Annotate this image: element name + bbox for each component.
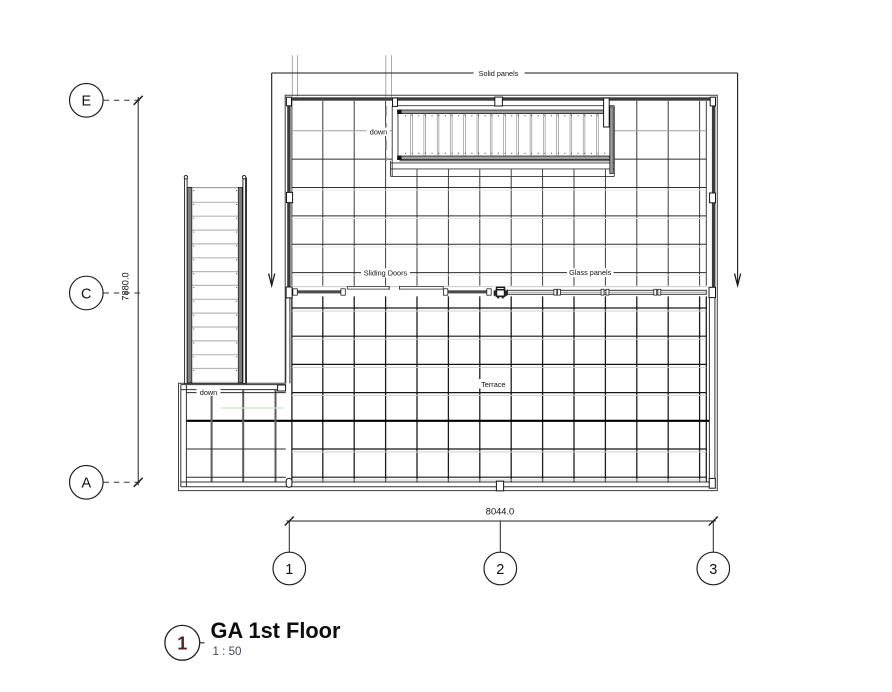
svg-text:2: 2 <box>496 562 504 578</box>
svg-text:1: 1 <box>177 633 187 653</box>
svg-text:E: E <box>81 94 91 110</box>
svg-text:down: down <box>200 388 217 397</box>
svg-text:A: A <box>81 476 91 492</box>
svg-text:GA 1st Floor: GA 1st Floor <box>211 618 342 643</box>
svg-text:C: C <box>81 286 91 302</box>
svg-text:8044.0: 8044.0 <box>486 507 514 517</box>
svg-text:Sliding Doors: Sliding Doors <box>364 268 408 277</box>
svg-text:Glass panels: Glass panels <box>569 268 612 277</box>
svg-text:3: 3 <box>709 562 717 578</box>
svg-text:Terrace: Terrace <box>481 380 505 389</box>
svg-text:down: down <box>370 128 387 137</box>
svg-text:7880.0: 7880.0 <box>121 272 131 300</box>
svg-text:1 : 50: 1 : 50 <box>213 645 242 658</box>
svg-text:1: 1 <box>285 562 293 578</box>
svg-text:Solid panels: Solid panels <box>479 69 519 78</box>
